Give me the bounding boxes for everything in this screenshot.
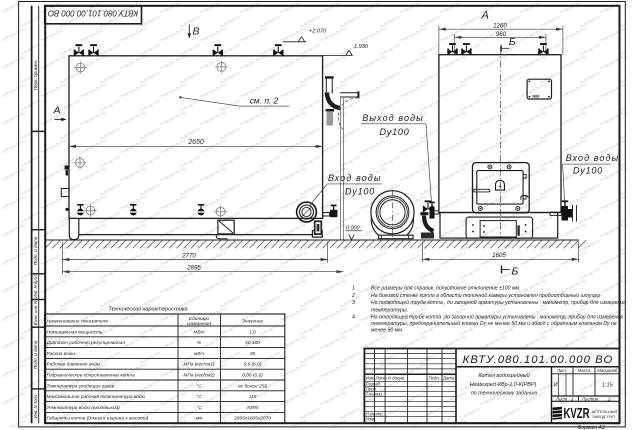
svg-text:МВт: МВт [193, 329, 204, 335]
svg-text:Вход воды: Вход воды [328, 173, 382, 183]
svg-text:Б: Б [512, 266, 519, 278]
svg-text:На боковой стенке котла в обла: На боковой стенке котла в области топочн… [371, 292, 600, 299]
svg-text:Значение: Значение [242, 319, 263, 325]
svg-text:2770: 2770 [181, 252, 196, 259]
svg-text:70/95: 70/95 [246, 405, 258, 411]
svg-text:Номинальная мощность: Номинальная мощность [47, 329, 104, 335]
svg-text:Все размеры для справок, допус: Все размеры для справок, допустимое откл… [371, 286, 521, 292]
svg-text:Котел водогрейный: Котел водогрейный [478, 372, 529, 379]
svg-text:Температура уходящих газов: Температура уходящих газов [47, 383, 115, 389]
svg-text:Dy100: Dy100 [345, 187, 375, 197]
svg-text:На отводящей трубе котла ,до з: На отводящей трубе котла ,до запорной ар… [371, 313, 623, 320]
svg-text:Перв. примен.: Перв. примен. [33, 60, 38, 91]
svg-text:Heatexpert-КВр-1,0-К(РВР): Heatexpert-КВр-1,0-К(РВР) [470, 382, 537, 388]
svg-text:Dy100: Dy100 [573, 166, 603, 176]
svg-text:1: 1 [352, 286, 355, 292]
svg-text:Температура воды (вход/выход): Температура воды (вход/выход) [47, 405, 121, 411]
svg-text:см. п. 2: см. п. 2 [250, 96, 279, 106]
svg-text:+2.070: +2.070 [309, 29, 327, 35]
svg-text:КОТЕЛЬНЫЙ: КОТЕЛЬНЫЙ [592, 409, 617, 414]
svg-text:Dy100: Dy100 [380, 127, 410, 137]
svg-text:2895: 2895 [186, 265, 201, 272]
svg-text:2895х1605х2070: 2895х1605х2070 [233, 416, 271, 422]
svg-text:Инв. N подл.: Инв. N подл. [33, 394, 38, 418]
svg-text:Инв. N дубл.: Инв. N дубл. [33, 274, 38, 298]
svg-text:температуры, предохранительный: температуры, предохранительный клапан Dy… [371, 320, 617, 327]
svg-text:Вход воды: Вход воды [566, 153, 620, 163]
svg-text:2: 2 [351, 293, 355, 299]
svg-text:КВТУ.080.101.00.000 ВО: КВТУ.080.101.00.000 ВО [463, 354, 614, 366]
svg-text:Лист: Лист [555, 396, 568, 401]
svg-text:А: А [481, 9, 489, 21]
svg-text:Лит.: Лит. [556, 368, 567, 373]
svg-text:На подводящей трубе котла ,: На подводящей трубе котла , до запорной … [371, 299, 626, 306]
svg-text:2650: 2650 [187, 139, 204, 146]
svg-text:Рабочее давление воды: Рабочее давление воды [47, 362, 101, 368]
svg-text:по техническому заданию: по техническому заданию [471, 390, 538, 396]
svg-text:N докум.: N докум. [388, 375, 405, 380]
svg-text:Подп. и дата: Подп. и дата [33, 236, 38, 265]
svg-text:3: 3 [352, 300, 355, 306]
svg-text:°С: °С [196, 394, 202, 400]
svg-text:Формат А3: Формат А3 [577, 425, 605, 430]
svg-text:Масса: Масса [578, 368, 591, 373]
svg-text:И: И [553, 383, 557, 389]
svg-text:Техническая характеристика: Техническая характеристика [108, 307, 187, 313]
svg-text:1605: 1605 [492, 252, 506, 259]
svg-text:1.930: 1.930 [354, 44, 369, 50]
svg-text:Наименование показателя: Наименование показателя [47, 319, 109, 325]
svg-text:измерения: измерения [187, 322, 211, 327]
svg-text:2: 2 [607, 396, 611, 401]
svg-text:960: 960 [496, 31, 507, 38]
svg-text:Расход воды: Расход воды [47, 351, 76, 357]
svg-text:В: В [193, 26, 200, 38]
svg-text:ЗАВОД РЭП: ЗАВОД РЭП [592, 414, 615, 419]
svg-text:%: % [197, 340, 202, 346]
svg-text:35: 35 [250, 351, 256, 357]
svg-text:Подп.: Подп. [429, 375, 440, 380]
svg-text:А: А [53, 105, 61, 117]
svg-text:Лист: Лист [375, 375, 387, 380]
svg-text:менее 50 мм.: менее 50 мм. [371, 327, 403, 333]
svg-text:4: 4 [352, 314, 355, 320]
svg-text:Максимальная рабочая температу: Максимальная рабочая температура воды [47, 394, 146, 400]
svg-text:МПа (кгс/см2): МПа (кгс/см2) [183, 373, 215, 379]
svg-text:Взам. инв. N: Взам. инв. N [33, 300, 38, 325]
svg-text:Диапазон рабочего регулировани: Диапазон рабочего регулирования [46, 340, 126, 346]
svg-text:Подп. и дата: Подп. и дата [33, 340, 38, 369]
svg-text:Масштаб: Масштаб [597, 368, 618, 373]
svg-text:KVZR: KVZR [564, 406, 590, 422]
svg-text:КВТУ.080.101.00.000 ВО: КВТУ.080.101.00.000 ВО [48, 8, 138, 17]
svg-text:Выход воды: Выход воды [362, 113, 424, 123]
svg-text:МПа (кгс/см2): МПа (кгс/см2) [183, 362, 215, 368]
svg-text:1260: 1260 [493, 22, 507, 29]
svg-text:50-100: 50-100 [245, 340, 260, 346]
svg-text:°С: °С [196, 383, 202, 389]
svg-text:м3/ч: м3/ч [194, 351, 204, 357]
svg-text:Т.контр.: Т.контр. [366, 392, 383, 397]
svg-text:Габариты котла (длина х ширина: Габариты котла (длина х ширина х высота) [47, 416, 149, 422]
svg-text:1:15: 1:15 [602, 383, 614, 389]
svg-text:0,6 (6,0): 0,6 (6,0) [244, 362, 262, 368]
svg-text:115: 115 [249, 394, 257, 400]
svg-text:1,0: 1,0 [249, 329, 256, 335]
svg-text:Б: Б [509, 36, 516, 48]
svg-text:Изм.: Изм. [366, 375, 375, 380]
svg-text:Гидравлическое сопротивление к: Гидравлическое сопротивление котла [47, 373, 135, 379]
svg-text:Листов: Листов [581, 396, 599, 401]
svg-text:не более 250: не более 250 [238, 383, 268, 389]
svg-text:Дата: Дата [442, 375, 455, 380]
svg-text:°С: °С [196, 405, 202, 411]
svg-text:0,06 (0,6): 0,06 (0,6) [242, 373, 263, 379]
svg-text:мм: мм [196, 417, 203, 422]
svg-text:Утв.: Утв. [366, 416, 376, 421]
svg-text:температуры.: температуры. [371, 307, 408, 313]
